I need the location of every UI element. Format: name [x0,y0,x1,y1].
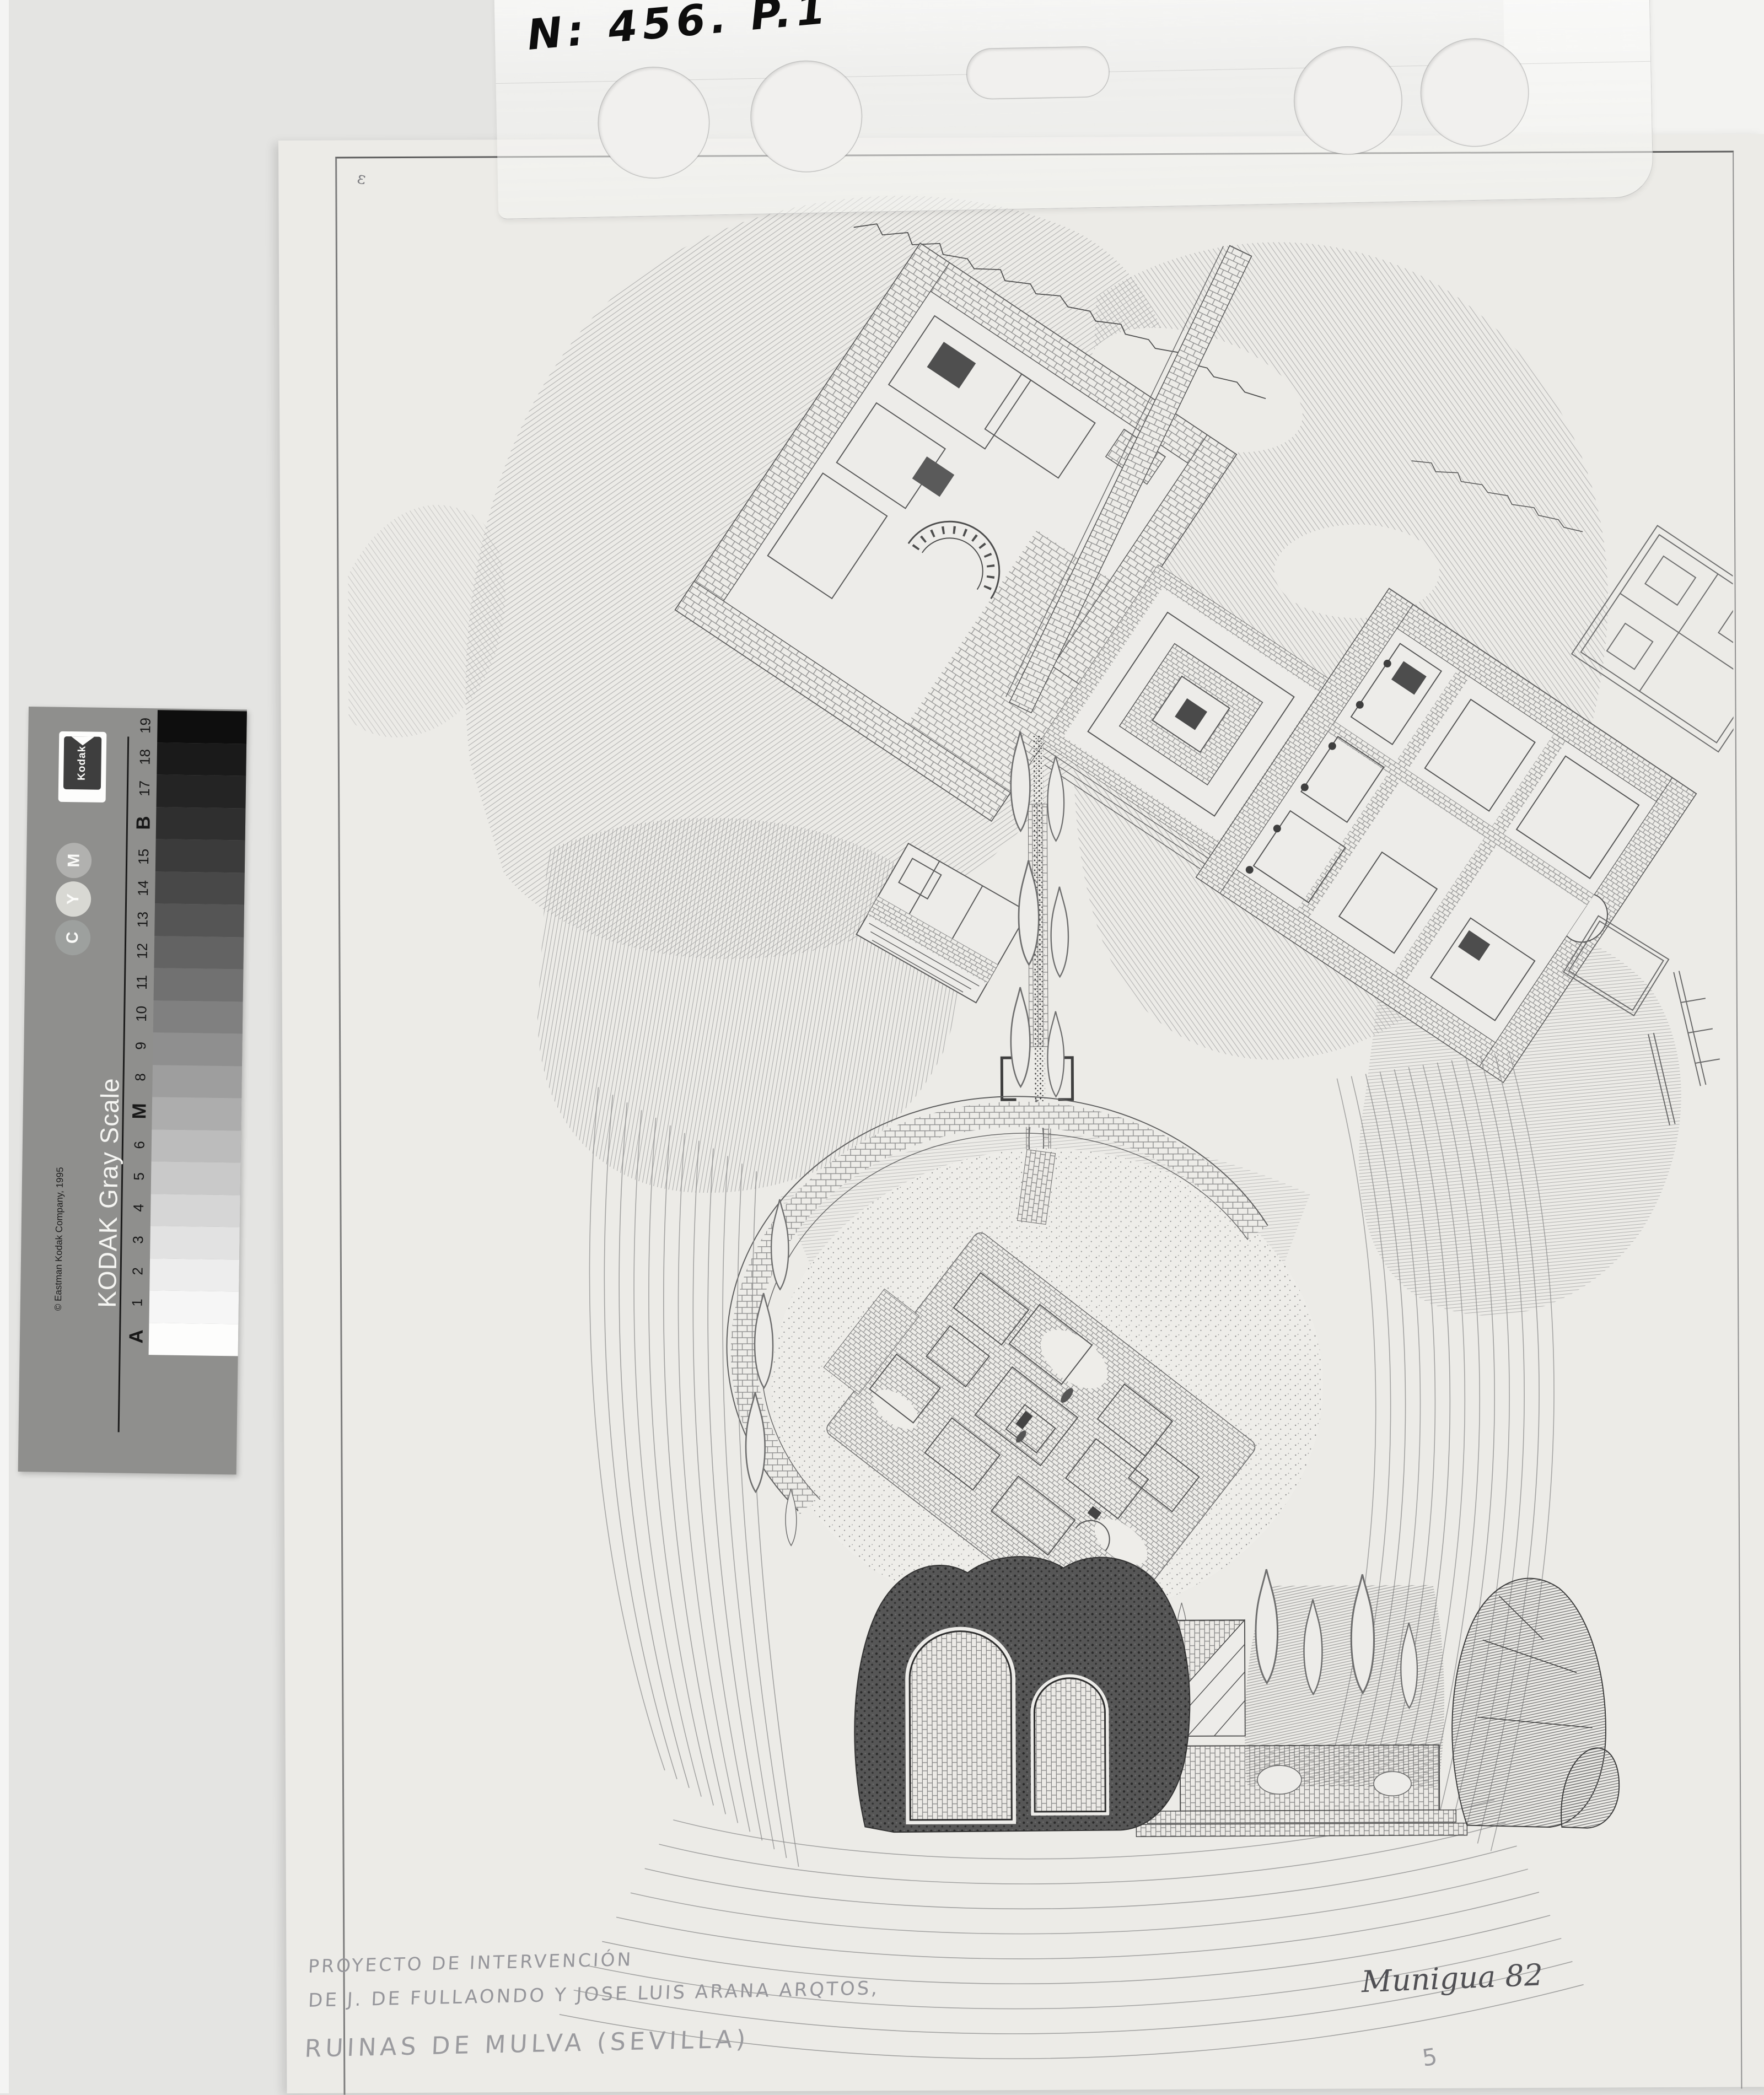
ink-dot-y: Y [56,881,92,917]
gray-patch [155,871,245,905]
gray-patch-label: 10 [129,998,154,1030]
gray-patch-label: 4 [126,1192,151,1224]
gray-patch [149,1323,239,1356]
gray-patch-label: 15 [131,841,156,873]
contour-line [619,1102,689,1789]
archival-photo: { "photo": { "background_color": "#e4e4e… [0,0,1764,2093]
punch-slot [966,47,1109,99]
gray-patch-label: 18 [132,741,157,773]
gray-patch [156,807,246,841]
drawing-sheet: PROYECTO DE INTERVENCIÓN DE J. DE FULLAO… [278,134,1764,2093]
gray-patch-label: 6 [127,1129,152,1161]
contour-lines-bottom [558,1800,1584,2061]
gray-patch [152,1065,242,1098]
gray-patch-label: M [127,1092,152,1129]
punch-hole [1420,38,1529,147]
gray-patch-label: A [125,1318,149,1355]
gray-patch-label: 9 [128,1030,153,1062]
gray-patch [149,1258,239,1292]
archive-number: N: 456. P.1 [525,0,832,60]
contour-line [707,1148,762,1840]
scanner-edge-strip [0,0,9,2093]
gray-patch [151,1161,241,1195]
gray-patch [154,968,244,1001]
archive-label-strip: N: 456. P.1 [494,0,1654,219]
ink-dot-m: M [56,843,92,879]
punch-hole [1294,46,1403,155]
gray-patch [152,1097,241,1130]
gray-patch [152,1129,241,1163]
gray-patch-label: 5 [127,1161,152,1193]
gray-patch [153,1032,243,1066]
gray-patch-label: 1 [125,1286,150,1318]
gray-patch [149,1290,239,1324]
contour-line [616,1892,1539,1961]
gray-patch-label: 19 [133,710,158,742]
gray-patch-label: 17 [132,773,157,805]
gray-patch-label: 13 [130,904,155,936]
contour-line [631,1869,1528,1936]
gray-patch [150,1194,240,1227]
gray-patch [154,903,244,937]
gray-patch-label: 3 [126,1224,150,1256]
gray-patch [154,936,244,970]
artist-inscription: Munigua 82 [1360,1957,1543,1999]
contour-line [648,1118,713,1806]
contour-line [692,1140,750,1832]
gray-patch [155,839,245,873]
gray-patch-label: 14 [131,872,155,904]
ink-dot-c: C [55,920,91,956]
gray-patch [157,742,246,776]
gray-patch-label: 2 [125,1255,150,1287]
contour-lines-left [589,1086,799,1868]
gray-patch-label: 12 [130,935,154,967]
kodak-gray-scale-card: Kodak KODAK Gray Scale © Eastman Kodak C… [18,707,247,1474]
gray-patch-label: B [132,804,157,841]
munigua-axonometric-drawing [335,151,1739,2093]
gray-patch [157,710,247,744]
gray-patch-label: 8 [128,1061,153,1093]
arched-substructures [854,1556,1190,1833]
contour-line [633,1110,702,1797]
gray-patch [153,1000,243,1034]
gray-patches [149,710,247,1356]
gray-patch-label: 11 [130,967,154,999]
gray-patch [150,1226,240,1259]
punch-hole [598,67,710,179]
gray-patch [156,774,246,808]
punch-hole [750,60,863,173]
